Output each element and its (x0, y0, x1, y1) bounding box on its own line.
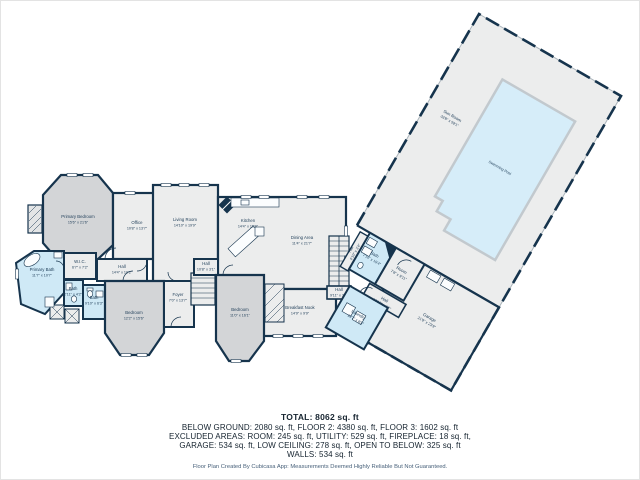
total-area-text: TOTAL: 8062 sq. ft (1, 413, 639, 423)
open-to-below-hatch (265, 284, 284, 322)
breakfast-nook-label: Breakfast Nook (285, 305, 315, 310)
wic-dims: 6'7" x 7'2" (72, 266, 89, 270)
closet-hatch-boxes (50, 305, 79, 323)
balcony-hatch (28, 205, 42, 233)
walls-area-text: WALLS: 534 sq. ft (1, 450, 639, 459)
room-bedroom-center (216, 275, 264, 361)
breakfast-nook-dims: 14'9" x 9'9" (291, 312, 310, 316)
foyer-dims: 7'0" x 13'7" (169, 299, 188, 303)
floor-plan-canvas: Primary Bedroom 15'6" x 21'6" Office 10'… (1, 1, 640, 406)
primary-bedroom-dims: 15'6" x 21'6" (68, 221, 89, 225)
dining-area-dims: 11'4" x 21'7" (292, 242, 313, 246)
floor-plan-page: Primary Bedroom 15'6" x 21'6" Office 10'… (0, 0, 640, 480)
bath-small-label: Bath (69, 286, 78, 291)
bedroom-center-dims: 11'0" x 16'1" (230, 314, 251, 318)
hall-right-small-label: Hall (335, 287, 342, 292)
hall-left-label: Hall (118, 264, 125, 269)
living-room-dims: 14'10" x 19'9" (174, 224, 197, 228)
hall-left-dims: 14'4" x 10'2" (112, 271, 133, 275)
office-label: Office (131, 220, 143, 225)
garage-lowceiling-text: GARAGE: 534 sq. ft, LOW CEILING: 278 sq.… (1, 441, 639, 450)
bath-small-dims: 2'11" x 4'2" (64, 293, 83, 297)
bath-left-label: Bath (90, 295, 99, 300)
hall-center-dims: 10'8" x 3'1" (197, 268, 216, 272)
office-dims: 10'8" x 13'7" (127, 227, 148, 231)
wic-label: W.I.C. (74, 259, 86, 264)
bedroom-left-dims: 12'2" x 15'6" (124, 317, 145, 321)
primary-bath-label: Primary Bath (30, 267, 55, 272)
hall-center-label: Hall (202, 261, 209, 266)
dining-area-label: Dining Area (291, 235, 314, 240)
bedroom-left-label: Bedroom (125, 310, 143, 315)
excluded-areas-text: EXCLUDED AREAS: ROOM: 245 sq. ft, UTILIT… (1, 432, 639, 441)
room-foyer (164, 281, 194, 327)
disclaimer-text: Floor Plan Created By Cubicasa App: Meas… (1, 464, 639, 470)
kitchen-dims: 14'4" x 15'9" (238, 225, 259, 229)
stairs-foyer (191, 273, 215, 305)
primary-bedroom-label: Primary Bedroom (61, 214, 95, 219)
kitchen-label: Kitchen (241, 218, 256, 223)
bedroom-center-label: Bedroom (231, 307, 249, 312)
wing-group: Sun Room 33'8" x 59'1" Swimming Pool Gar… (305, 14, 621, 397)
living-room-label: Living Room (173, 217, 197, 222)
area-summary: TOTAL: 8062 sq. ft BELOW GROUND: 2080 sq… (1, 413, 639, 470)
primary-bath-dims: 11'7" x 10'7" (32, 274, 53, 278)
foyer-label: Foyer (173, 292, 185, 297)
floors-area-text: BELOW GROUND: 2080 sq. ft, FLOOR 2: 4380… (1, 423, 639, 432)
bath-left-dims: 9'10" x 6'3" (85, 302, 104, 306)
